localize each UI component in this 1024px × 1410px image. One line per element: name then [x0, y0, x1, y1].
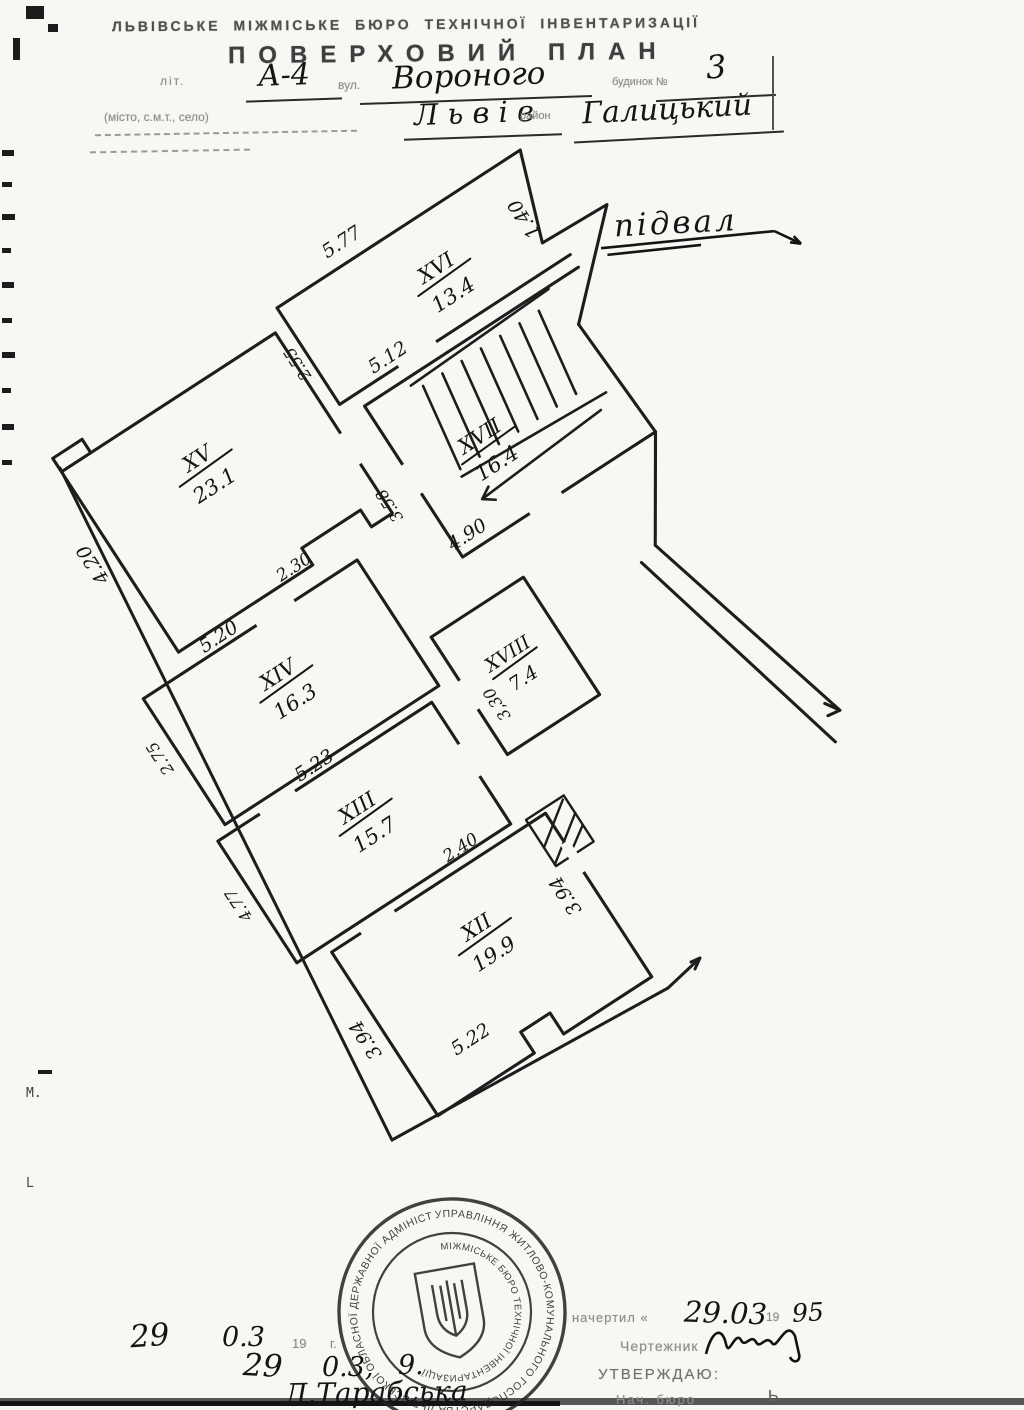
scanned-floor-plan-page: ЛЬВІВСЬКЕ МІЖМІСЬКЕ БЮРО ТЕХНІЧНОЇ ІНВЕН…: [0, 0, 1024, 1410]
trident: [432, 1278, 471, 1338]
dim-2-30: 2.30: [272, 549, 316, 587]
trident-emblem: [415, 1263, 490, 1362]
room-xviii-walls: [431, 577, 600, 754]
drawn-year: 95: [791, 1297, 824, 1328]
room-labels: XVI 13.4 XV 23.1 XVII 16.4 XIV 1: [102, 239, 801, 999]
staircase: [402, 289, 629, 508]
room-xii-label: XII 19.9: [445, 899, 529, 981]
drawn-date: 29.03: [683, 1295, 767, 1332]
dim-5-22: 5.22: [447, 1019, 494, 1060]
footer-date1-g: г.: [330, 1336, 337, 1351]
drawn-label: начертил «: [572, 1310, 649, 1325]
footer-date2-day: 29: [242, 1347, 283, 1385]
shaft-hatch: [528, 798, 594, 866]
chief-label: Нач. бюро: [616, 1392, 696, 1407]
artifact-blob: [26, 6, 44, 19]
dim-2-40: 2.40: [439, 829, 483, 867]
edge-mark: [2, 150, 14, 156]
hatched-shaft: [526, 795, 594, 866]
chief-initial: Ь: [768, 1388, 779, 1406]
approve-label: УТВЕРЖДАЮ:: [598, 1366, 720, 1383]
edge-mark: [2, 182, 12, 187]
room-xvii-label: XVII 16.4: [448, 408, 532, 490]
edge-mark: [2, 424, 14, 430]
edge-mark: [2, 388, 11, 393]
footer-date1-day: 29: [129, 1317, 171, 1356]
draftsman-signature: [706, 1331, 799, 1362]
building-outer-envelope: [60, 468, 700, 1140]
stair-treads: [411, 311, 587, 469]
outer-wall-bottom: [392, 988, 668, 1140]
edge-mark: [2, 248, 11, 253]
room-xvi-label: XVI 13.4: [404, 239, 488, 321]
outer-wall-tail-arrow: [668, 958, 700, 988]
room-xiii-label: XIII 15.7: [326, 779, 410, 861]
drafter-name: Л.Тарабська: [284, 1374, 468, 1410]
dim-4-90: 4.90: [443, 514, 491, 556]
artifact-blob: [48, 24, 58, 32]
drawn-year-prefix: 19: [766, 1310, 779, 1324]
margin-l-mark: L: [26, 1176, 34, 1191]
room-xv-label: XV 23.1: [166, 430, 250, 512]
floor-plan-drawing: XVI 13.4 XV 23.1 XVII 16.4 XIV 1: [0, 0, 1024, 1410]
edge-mark: [2, 282, 14, 288]
artifact-blob: [13, 38, 20, 60]
draftsman-label: Чертежник: [620, 1338, 699, 1354]
margin-m-mark: М.: [26, 1086, 42, 1101]
margin-dash: [38, 1070, 52, 1074]
rotated-plan-group: XVI 13.4 XV 23.1 XVII 16.4 XIV 1: [0, 101, 973, 1150]
plan-caption-group: підвал: [599, 199, 801, 255]
edge-mark: [2, 460, 12, 465]
room-xvii-walls: [365, 267, 677, 557]
edge-mark: [2, 214, 15, 220]
dim-3-94-right: 3.94: [545, 872, 586, 919]
edge-mark: [2, 318, 12, 323]
footer-date1-year-label: 19: [292, 1336, 306, 1351]
plan-caption: підвал: [613, 202, 739, 244]
room-xiv-label: XIV 16.3: [246, 646, 330, 728]
corridor-walls: [586, 430, 853, 777]
dim-1-40: 1.40: [504, 195, 545, 242]
edge-mark: [2, 352, 15, 358]
